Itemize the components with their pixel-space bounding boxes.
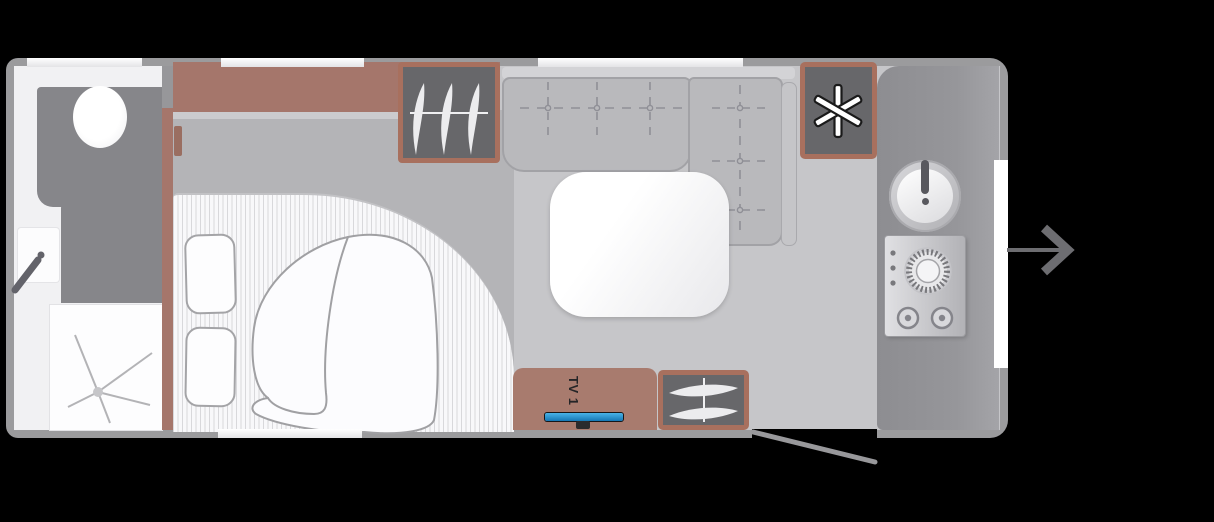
hanger-icon xyxy=(405,67,493,158)
hob-burners-icon xyxy=(885,236,965,336)
kitchen-tap-icon xyxy=(921,160,929,194)
dinette-table xyxy=(550,172,729,317)
washroom-partition-wall xyxy=(162,108,173,430)
washroom-wall-stub xyxy=(162,66,173,110)
caravan-floorplan: TV 1 xyxy=(0,0,1214,522)
tv-stand xyxy=(576,421,590,429)
window-front xyxy=(27,58,142,67)
hanger-icon xyxy=(663,375,744,425)
entry-arrow-icon xyxy=(1006,222,1084,278)
shower-drain-icon xyxy=(50,305,162,430)
open-door-icon xyxy=(748,426,882,470)
washroom-vanity-lower xyxy=(61,196,162,303)
window-bedroom xyxy=(221,58,364,67)
pillow-icon xyxy=(184,327,236,408)
snowflake-fridge-icon xyxy=(810,83,866,139)
partition-door-marker xyxy=(174,126,182,156)
tv-label: TV 1 xyxy=(566,376,581,416)
tap-lever-icon xyxy=(8,246,54,298)
kitchen-tap-dot xyxy=(922,198,929,205)
pillow-icon xyxy=(184,233,237,314)
toilet-icon xyxy=(73,86,127,148)
window-dinette xyxy=(538,58,743,67)
tv-icon xyxy=(545,413,623,421)
window-bedside xyxy=(218,429,362,438)
duvet-icon xyxy=(244,228,469,438)
